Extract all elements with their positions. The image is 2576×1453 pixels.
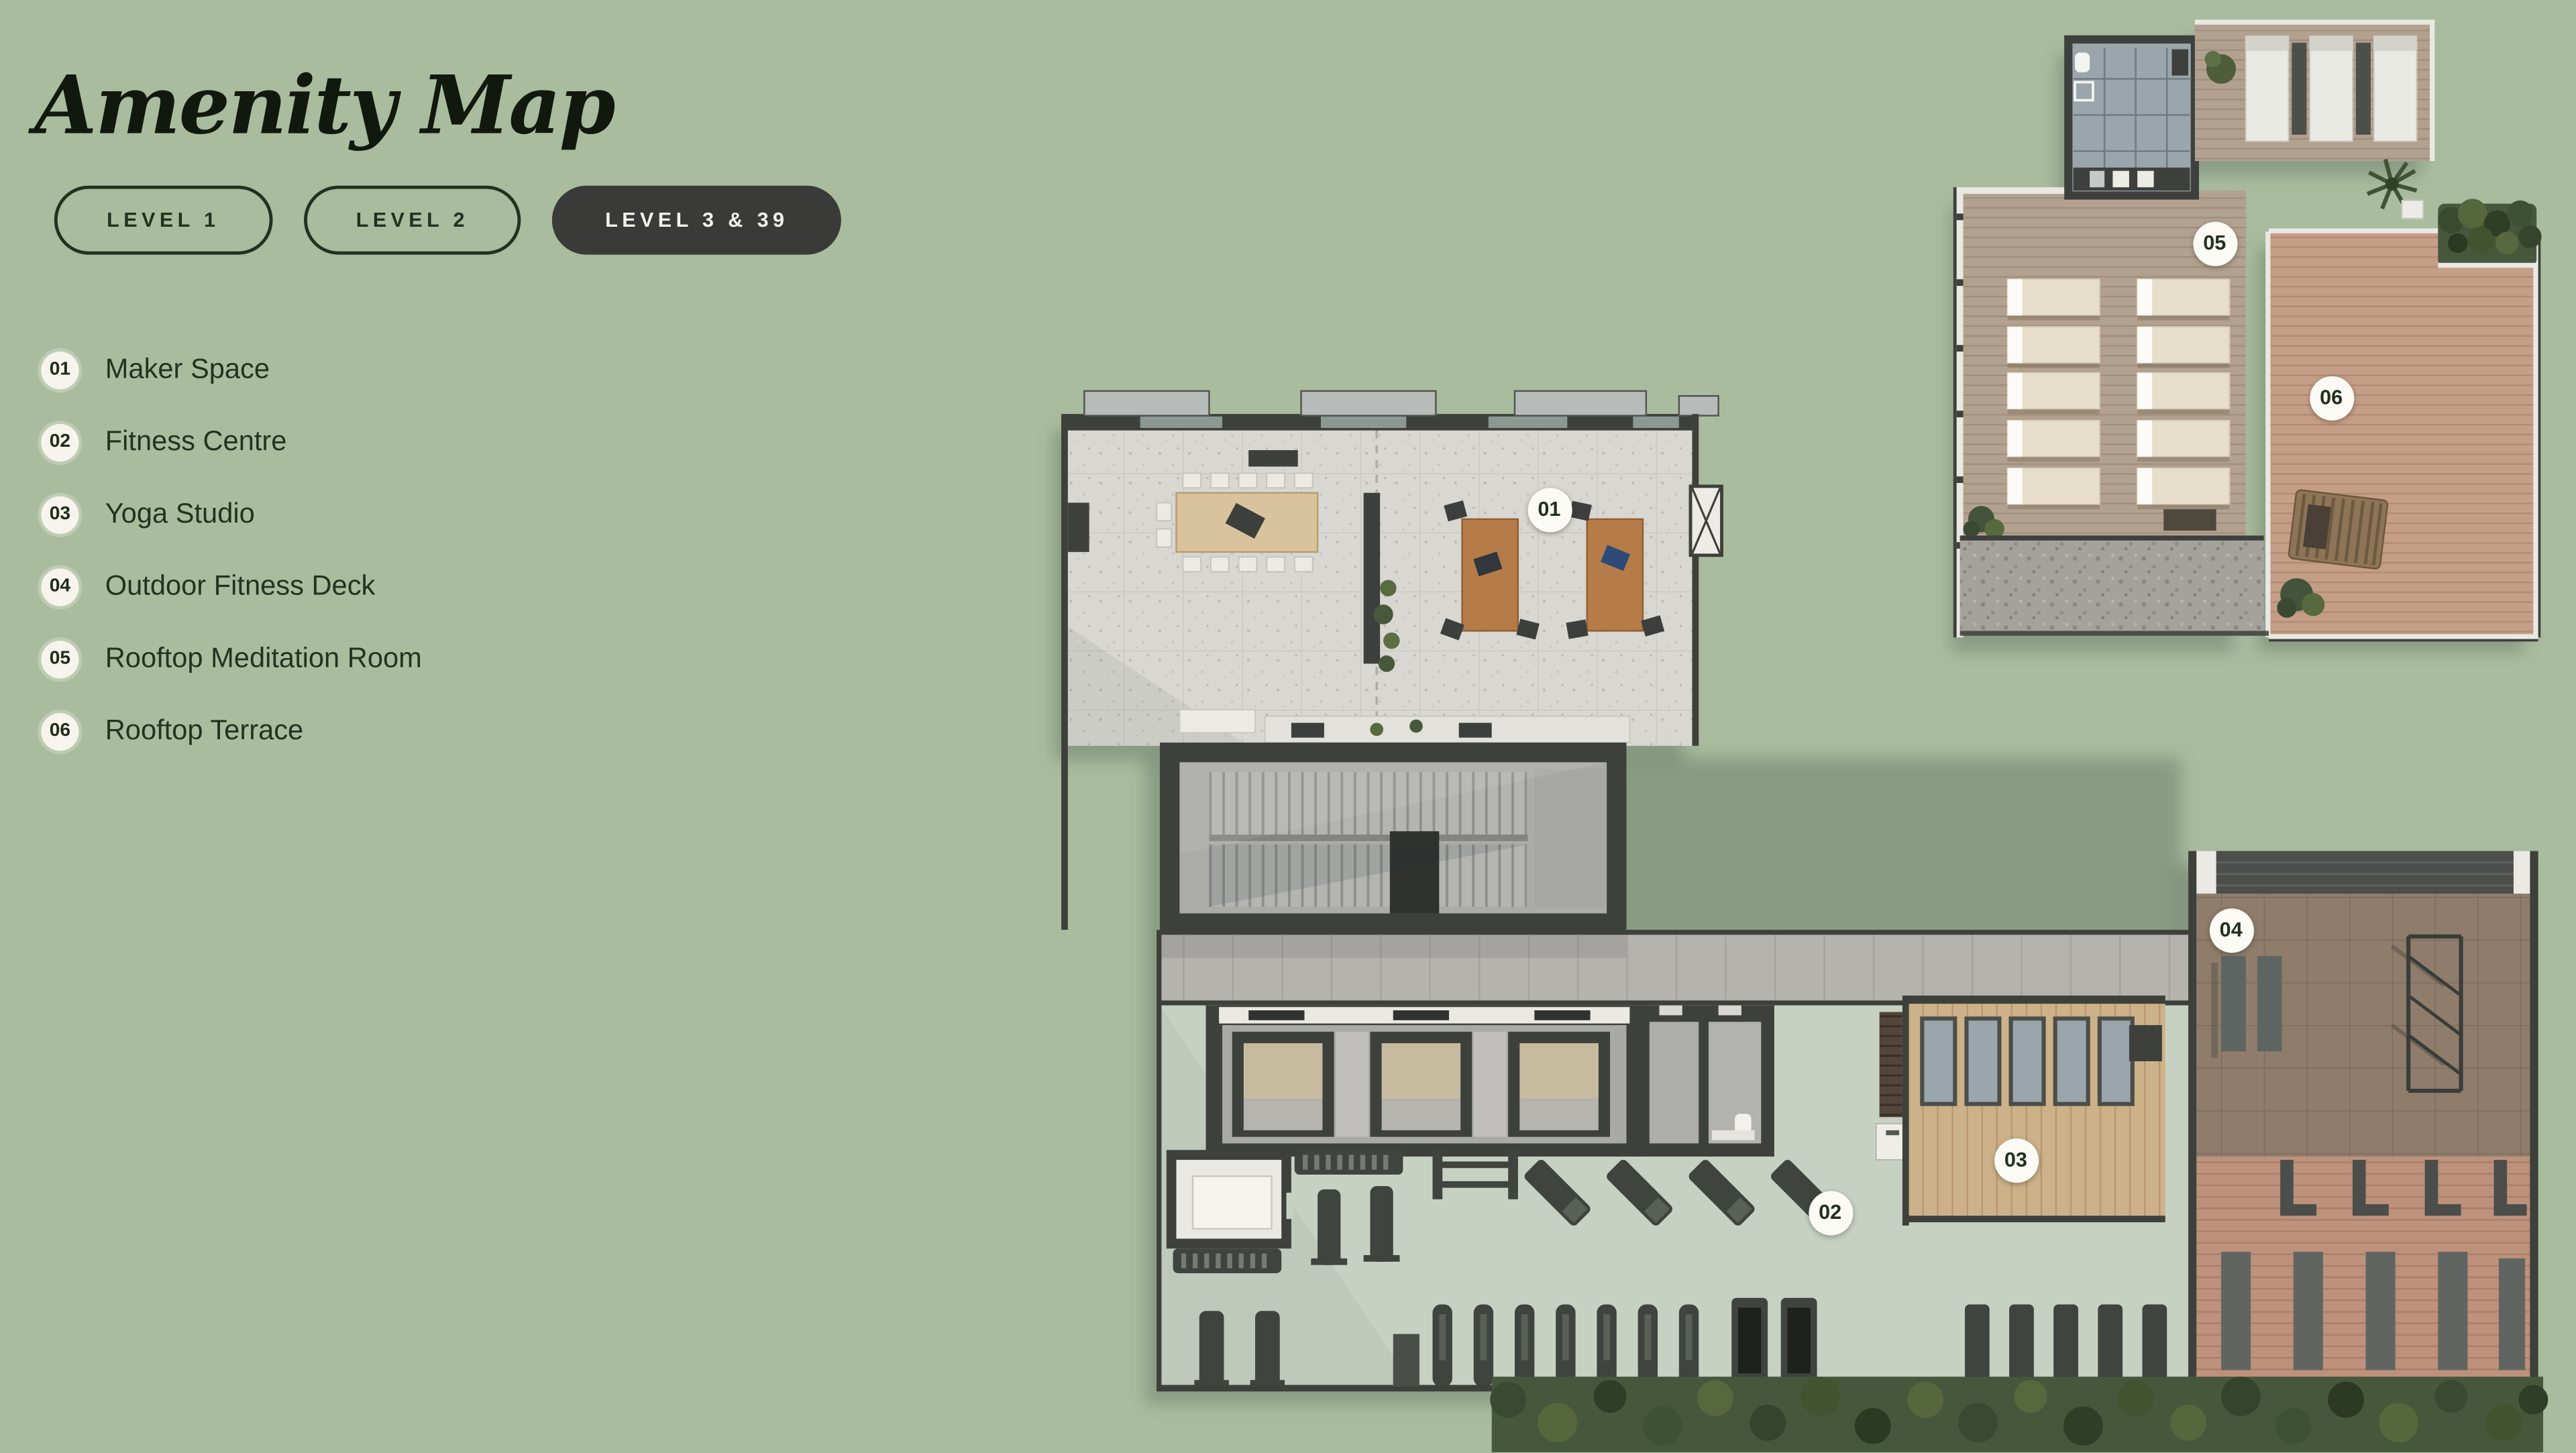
map-marker-06-rooftop-terrace[interactable]: 06	[2309, 376, 2353, 420]
stage: Amenity Map LEVEL 1 LEVEL 2 LEVEL 3 & 39…	[0, 0, 2576, 1452]
gravel-strip	[1960, 535, 2269, 635]
legend-item-rooftop-meditation-room: 05 Rooftop Meditation Room	[41, 623, 422, 695]
page-title: Amenity Map	[34, 57, 614, 152]
legend-number: 02	[41, 423, 78, 461]
corridor	[1160, 930, 2193, 1006]
map-marker-02-fitness-centre[interactable]: 02	[1808, 1190, 1852, 1234]
lounge-room	[1206, 1006, 1643, 1156]
amenity-legend: 01 Maker Space 02 Fitness Centre 03 Yoga…	[41, 333, 422, 767]
map-marker-04-outdoor-deck[interactable]: 04	[2209, 908, 2253, 952]
legend-label: Fitness Centre	[105, 425, 287, 458]
legend-number: 06	[41, 712, 78, 750]
floor-plan-rooftop	[1953, 19, 2542, 641]
terrace-hedge	[2438, 199, 2541, 268]
legend-label: Rooftop Terrace	[105, 714, 303, 747]
level-tabs: LEVEL 1 LEVEL 2 LEVEL 3 & 39	[54, 186, 841, 255]
washroom-rooms	[1636, 1006, 1774, 1156]
rooftop-lounger-deck	[2195, 19, 2435, 218]
legend-item-outdoor-fitness-deck: 04 Outdoor Fitness Deck	[41, 550, 422, 623]
yoga-studio-area	[1902, 995, 2165, 1226]
legend-label: Yoga Studio	[105, 498, 255, 531]
legend-label: Maker Space	[105, 354, 270, 386]
hedge	[1490, 1377, 2548, 1452]
map-marker-03-yoga-studio[interactable]: 03	[1994, 1138, 2038, 1182]
legend-item-rooftop-terrace: 06 Rooftop Terrace	[41, 695, 422, 767]
legend-number: 05	[41, 640, 78, 678]
tab-level-3-39[interactable]: LEVEL 3 & 39	[553, 186, 841, 255]
legend-label: Outdoor Fitness Deck	[105, 570, 376, 603]
legend-item-maker-space: 01 Maker Space	[41, 333, 422, 406]
legend-item-yoga-studio: 03 Yoga Studio	[41, 478, 422, 551]
legend-label: Rooftop Meditation Room	[105, 643, 422, 676]
elevator	[1690, 486, 1722, 555]
legend-number: 03	[41, 495, 78, 533]
tab-level-1[interactable]: LEVEL 1	[54, 186, 272, 255]
stair-core	[1160, 743, 1627, 933]
legend-item-fitness-centre: 02 Fitness Centre	[41, 406, 422, 478]
rooftop-terrace-area	[2265, 199, 2541, 641]
map-marker-05-meditation-room[interactable]: 05	[2192, 221, 2237, 265]
storage-room	[1167, 1150, 1293, 1248]
legend-number: 01	[41, 351, 78, 388]
map-marker-01-maker-space[interactable]: 01	[1527, 487, 1571, 531]
legend-number: 04	[41, 568, 78, 605]
amenity-map-page: Amenity Map LEVEL 1 LEVEL 2 LEVEL 3 & 39…	[0, 0, 2576, 1453]
rooftop-indoor-room	[2068, 40, 2195, 196]
tab-level-2[interactable]: LEVEL 2	[303, 186, 521, 255]
terrace-daybed	[2288, 490, 2388, 570]
